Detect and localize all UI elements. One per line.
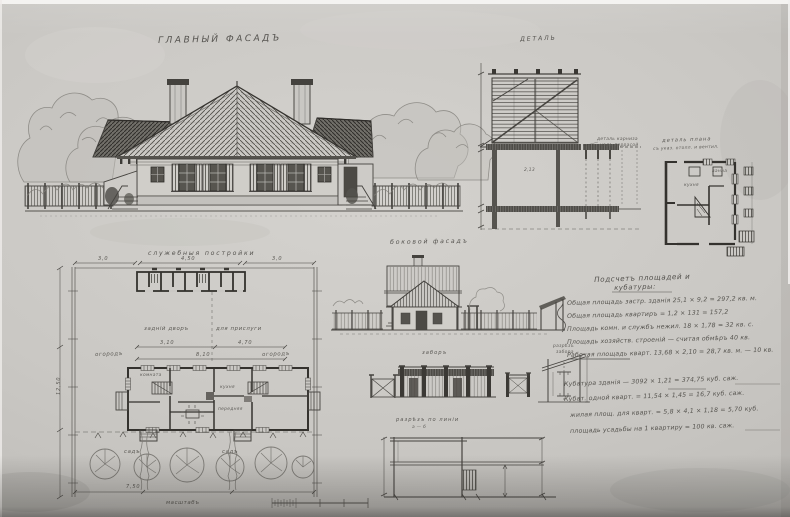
dim-left-vert: 12,50 <box>56 377 62 395</box>
facade-wall <box>104 159 373 205</box>
dim-bottom: 7,50 <box>126 484 140 490</box>
plan-label-garden-right: садъ <box>222 449 238 455</box>
plan-detail-room-2: ванна <box>712 169 727 174</box>
photo-edge-left <box>0 0 2 517</box>
dim-top-right: 3,0 <box>272 256 282 262</box>
shed-roof <box>539 296 566 310</box>
plan-label-field-left: огородъ <box>95 351 123 358</box>
title-side-facade: боковой фасадъ <box>390 238 469 246</box>
title-fence: заборъ <box>422 350 447 356</box>
floor-plan-drawing <box>57 261 322 499</box>
fence-elevation-drawing <box>369 354 590 402</box>
chimney-right <box>291 79 313 124</box>
scale-caption: масштабъ <box>166 500 200 506</box>
main-facade-drawing <box>18 79 495 216</box>
title-bottom-section-2: а — б <box>412 425 426 430</box>
room-label-living: комната <box>140 373 162 378</box>
paper-stains <box>0 0 790 517</box>
scale-bar <box>272 498 368 508</box>
notes-heading-2: кубатуры: <box>614 283 656 292</box>
stair-triangle <box>695 197 710 217</box>
blueprint-sheet: ГЛАВНЫЙ ФАСАДЪ ДЕТАЛЬ служебныя постройк… <box>0 0 790 517</box>
room-label-kitchen: кухня <box>220 385 235 390</box>
cornice-note-1: деталь карниза <box>597 137 638 142</box>
service-building-plan <box>137 269 245 291</box>
dim-top-left: 3,0 <box>98 256 108 262</box>
bottom-section-drawing <box>381 437 556 500</box>
side-facade-drawing <box>331 255 566 334</box>
fence-left <box>25 183 113 209</box>
dim-top-mid: 4,50 <box>181 256 195 262</box>
dim-mid-total: 8,10 <box>196 352 210 358</box>
stove-symbol <box>206 392 214 400</box>
fence-right <box>372 183 460 209</box>
section-room-dim: 2,13 <box>524 168 535 173</box>
sheet-artwork <box>0 0 790 517</box>
title-detail: ДЕТАЛЬ <box>520 35 557 43</box>
dim-mid-right: 4,70 <box>238 340 252 346</box>
margin-squiggle <box>557 298 565 332</box>
title-bottom-section-1: разрѣзъ по линіи <box>396 417 459 423</box>
plan-label-yard-left: задній дворъ <box>144 326 189 332</box>
plan-label-yard-right: для прислуги <box>216 326 262 332</box>
cornice-note-2: надъ террасой <box>600 143 638 148</box>
photo-edge-top <box>0 0 790 4</box>
plan-detail-room-1: кухня <box>684 183 699 188</box>
garden <box>75 432 314 490</box>
dim-mid-left: 3,10 <box>160 340 174 346</box>
table-symbol <box>181 405 204 424</box>
plan-label-garden-left: садъ <box>124 449 140 455</box>
room-label-hall: передняя <box>218 407 243 412</box>
title-service-buildings: служебныя постройки <box>148 250 255 257</box>
plan-label-field-right: огородъ <box>262 351 290 358</box>
